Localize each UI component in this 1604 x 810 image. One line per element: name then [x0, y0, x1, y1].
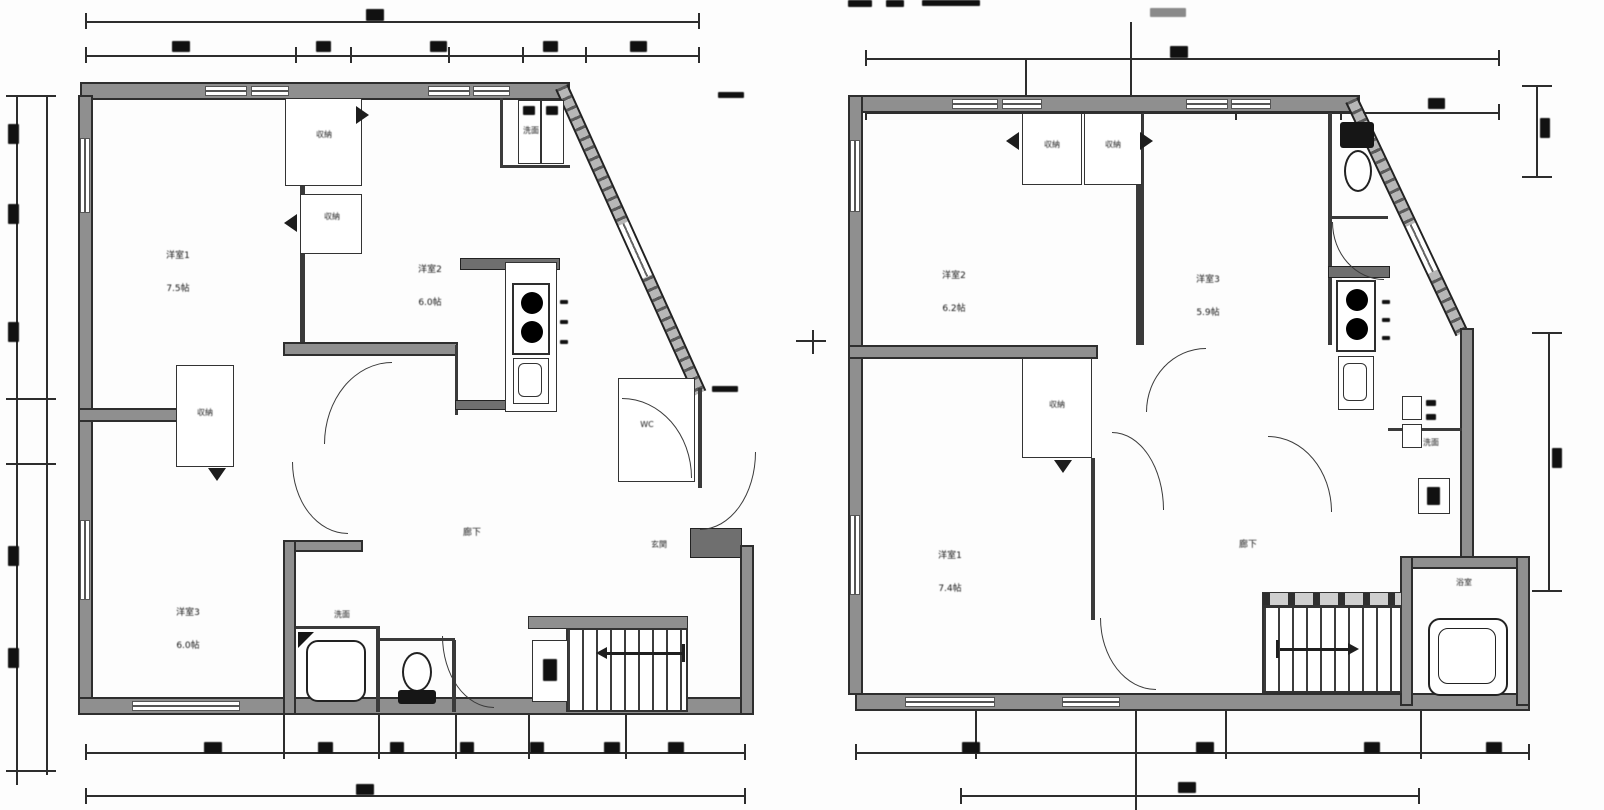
closet-label: 収納: [1032, 140, 1072, 150]
dimension-tick: [960, 788, 962, 804]
closet-door-marker: [1140, 132, 1153, 150]
ext-line: [812, 330, 814, 354]
dimension-line: [1536, 85, 1538, 178]
stair-arrow-head: [1348, 643, 1359, 655]
door-swing: [1100, 618, 1156, 690]
laundry-unit: [1418, 478, 1450, 514]
room-area: 5.9帖: [1176, 308, 1240, 319]
dimension-tick: [1522, 85, 1552, 87]
fixture-mark: [1426, 414, 1436, 420]
room-name: 洋室3: [1176, 275, 1240, 286]
dimension-line: [1548, 332, 1550, 592]
dimension-tick: [855, 744, 857, 760]
window: [1002, 99, 1042, 109]
door-swing: [1112, 432, 1164, 510]
window: [1186, 99, 1228, 109]
toilet-tank: [1340, 122, 1374, 148]
stair-arrow: [1280, 648, 1350, 651]
window: [1062, 697, 1120, 707]
dim-number: [1178, 782, 1196, 793]
floor-plan-right: 収納 収納 収納 洗面: [0, 0, 1604, 810]
dimension-tick: [796, 340, 826, 342]
sink-basin: [1343, 363, 1367, 401]
tub-inner: [1438, 628, 1496, 684]
dimension-line: [960, 795, 1420, 797]
window: [905, 697, 995, 707]
window: [850, 515, 860, 595]
dimension-tick: [865, 50, 867, 66]
door-swing: [1146, 348, 1206, 412]
bath-label: 浴室: [1442, 578, 1486, 588]
dim-number: [1196, 742, 1214, 753]
window: [850, 140, 860, 212]
dimension-tick: [1498, 104, 1500, 120]
room-name: 洋室1: [918, 551, 982, 562]
cropped-caption: [922, 0, 980, 6]
wall: [1091, 458, 1095, 620]
dim-number: [1428, 98, 1445, 109]
closet-label: 収納: [1093, 140, 1133, 150]
stove: [1336, 280, 1376, 352]
dimension-tick: [1498, 50, 1500, 66]
window: [1406, 223, 1437, 274]
door-swing: [1268, 436, 1332, 512]
room-area: 7.4帖: [918, 584, 982, 595]
closet-door-marker: [1006, 132, 1019, 150]
kitchen-sink: [1338, 356, 1374, 410]
dim-number: [1364, 742, 1380, 753]
stove-burner: [1346, 318, 1368, 340]
fixture-mark: [1426, 400, 1436, 406]
window: [952, 99, 998, 109]
dim-number: [962, 742, 980, 753]
dimension-tick: [1418, 788, 1420, 804]
room-label: 洋室2 6.2帖: [922, 248, 986, 338]
cropped-caption: [848, 0, 872, 7]
bath-wall: [1516, 556, 1530, 706]
room-label: 洋室1 7.4帖: [918, 528, 982, 618]
wall: [1328, 216, 1388, 219]
wall: [848, 345, 1098, 359]
wash-label: 洗面: [1414, 438, 1448, 448]
room-label: 洋室3 5.9帖: [1176, 252, 1240, 342]
toilet-bowl: [1344, 150, 1372, 192]
room-area: 6.2帖: [922, 304, 986, 315]
room-name: 洋室2: [922, 271, 986, 282]
tiny-note: [1382, 336, 1390, 340]
dimension-line: [865, 58, 1500, 60]
stair-rail: [1262, 592, 1402, 606]
hall-label: 廊下: [1226, 540, 1270, 551]
closet-label: 収納: [1037, 400, 1077, 410]
stair-arrow-end: [1276, 640, 1279, 658]
dim-number: [1486, 742, 1502, 753]
dimension-line: [855, 752, 1530, 754]
dim-number: [1540, 118, 1550, 138]
tiny-note: [1382, 318, 1390, 322]
tiny-note: [1382, 300, 1390, 304]
dimension-tick: [1522, 176, 1552, 178]
dim-number: [1552, 448, 1562, 468]
exterior-wall-right: [1460, 328, 1474, 568]
window: [1231, 99, 1271, 109]
bathtub: [1428, 618, 1508, 696]
floor-plan-sheet: 収納 収納 収納 洗面 WC 玄関: [0, 0, 1604, 810]
wall: [1388, 428, 1462, 431]
exterior-wall-top: [848, 95, 1360, 113]
wash-fixture: [1402, 396, 1422, 420]
closet-door-marker: [1054, 460, 1072, 473]
stove-burner: [1346, 289, 1368, 311]
dimension-tick: [1532, 332, 1562, 334]
bath-wall: [1400, 556, 1530, 569]
glyph: [1427, 487, 1440, 505]
dimension-tick: [1528, 744, 1530, 760]
dimension-tick: [1532, 590, 1562, 592]
dim-number: [1150, 8, 1186, 17]
cropped-caption: [886, 0, 904, 7]
dim-number: [1170, 46, 1188, 58]
